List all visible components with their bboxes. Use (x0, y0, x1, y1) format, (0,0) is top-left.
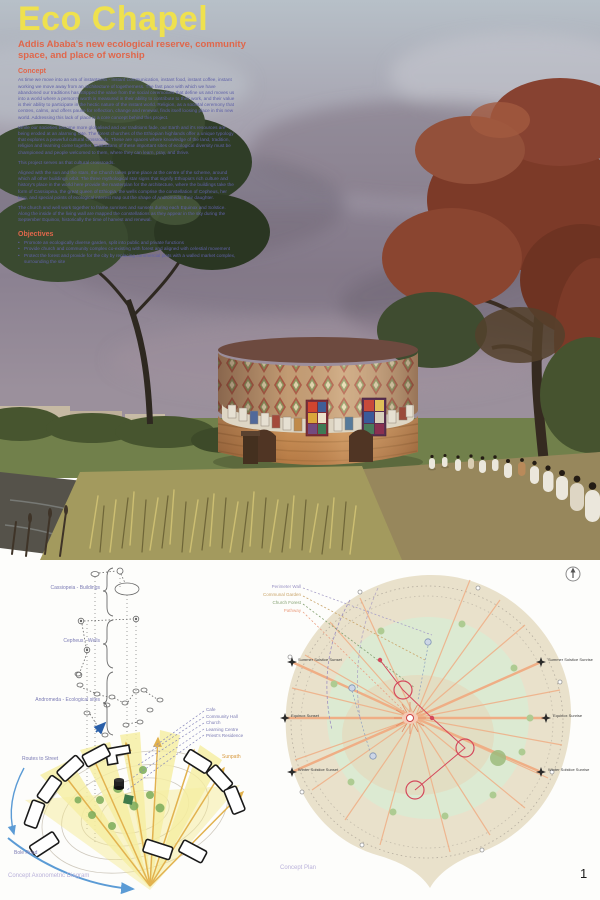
subtitle-line-2: space, and place of worship (18, 50, 246, 61)
plan-marker-summer-sunset: Summer Solstice Sunset (298, 658, 342, 662)
axon-building-label-learning-centre: Learning Centre (206, 728, 238, 733)
plan-marker-equinox-sunrise: Equinox Sunrise (553, 714, 582, 718)
concept-paragraph: Aligned with the sun and the stars, the … (18, 170, 236, 201)
concept-paragraph: While our societies become more globalis… (18, 125, 236, 156)
axon-group-label-cassiopeia: Cassiopeia - Buildings (10, 586, 100, 592)
objectives-block: Objectives Promote an ecologically diver… (18, 231, 246, 266)
plan-caption: Concept Plan (280, 865, 316, 872)
plan-marker-winter-sunrise: Winter Solstice Sunrise (548, 768, 589, 772)
competition-board: Eco Chapel Addis Ababa's new ecological … (0, 0, 600, 900)
grass-bank (40, 466, 402, 560)
concept-body: As time we move into an era of instantne… (18, 77, 246, 223)
concept-paragraph: As time we move into an era of instantne… (18, 77, 236, 120)
concept-paragraph: The church and well work together to fra… (18, 205, 236, 224)
plan-marker-summer-sunrise: Summer Solstice Sunrise (548, 658, 593, 662)
page-number: 1 (580, 866, 587, 881)
hero-render: Eco Chapel Addis Ababa's new ecological … (0, 0, 600, 560)
concept-heading: Concept (18, 68, 246, 75)
axon-sunpath-label: Sunpath (222, 755, 241, 761)
axon-building-label-community-hall: Community Hall (206, 715, 238, 720)
routes-arrow (11, 768, 24, 834)
axon-building-label-priests-residence: Priest's Residence (206, 734, 243, 739)
axon-group-label-cepheus: Cepheus - Wells (10, 639, 100, 645)
constellation-braces (103, 568, 113, 735)
objectives-heading: Objectives (18, 231, 246, 238)
axon-church (114, 778, 124, 790)
north-arrow-icon (566, 567, 580, 581)
plan-legend-church-forest: Church Forest (230, 601, 301, 606)
axon-garden-plot (123, 794, 134, 805)
hero-text-block: Eco Chapel Addis Ababa's new ecological … (18, 2, 246, 266)
entry-porch (243, 434, 258, 464)
chapel-building (213, 337, 423, 473)
axon-building-label-cafe: Cafe (206, 708, 216, 713)
plan-legend-communal-garden: Communal Garden (230, 593, 301, 598)
objective-item: Provide church and community complex co-… (18, 246, 236, 253)
plan-marker-winter-sunset: Winter Solstice Sunset (298, 768, 338, 772)
plan-legend-pathway: Pathway (230, 609, 301, 614)
page-title: Eco Chapel (18, 2, 246, 36)
page-subtitle: Addis Ababa's new ecological reserve, co… (18, 39, 246, 61)
objective-item: Promote an ecologically diverse garden, … (18, 240, 236, 247)
route-arrow-icon (96, 723, 105, 732)
concept-paragraph: This project serves as that cultural cro… (18, 160, 236, 166)
arch-doorway-right (349, 430, 373, 463)
axon-routes-label: Routes to Street (22, 757, 58, 763)
plan-marker-equinox-sunset: Equinox Sunset (291, 714, 319, 718)
axon-building-label-church: Church (206, 721, 221, 726)
subtitle-line-1: Addis Ababa's new ecological reserve, co… (18, 39, 246, 50)
axon-road-label: Bole Road (14, 851, 37, 857)
plan-legend-perimeter-wall: Perimeter Wall (230, 585, 301, 590)
andromeda-nodes (75, 672, 163, 737)
axon-group-label-andromeda: Andromeda - Ecological sites (2, 698, 100, 704)
axon-caption: Concept Axonometric Diagram (8, 873, 89, 880)
objective-item: Protect the forest and provide for the c… (18, 253, 236, 266)
concept-plan (280, 567, 580, 888)
